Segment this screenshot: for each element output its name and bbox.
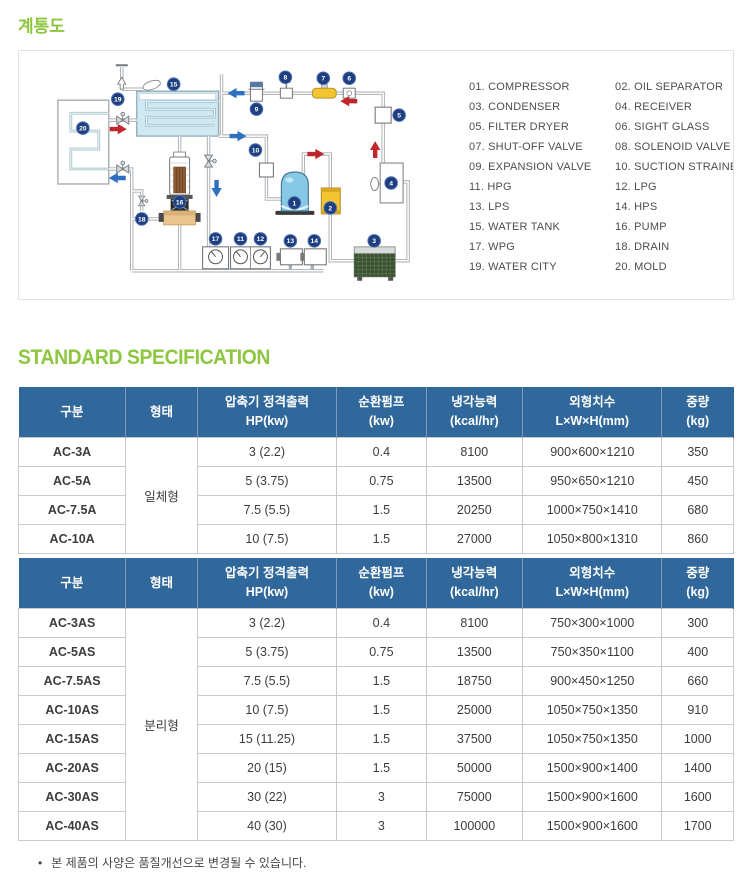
data-cell: 680 [662,496,734,525]
data-cell: 300 [662,609,734,638]
pressure-switches [276,249,326,265]
footnote-bullet: • [38,856,42,870]
diagram-markers: 1234567891011121314151617181920 [77,71,406,247]
col-header: 구분 [19,387,126,438]
data-cell: 37500 [426,725,523,754]
col-header: 순환펌프(kw) [337,387,426,438]
data-cell: 27000 [426,525,523,554]
model-cell: AC-5A [19,467,126,496]
data-cell: 1400 [662,754,734,783]
data-cell: 5 (3.75) [197,467,336,496]
data-cell: 8100 [426,438,523,467]
data-cell: 1000×750×1410 [523,496,662,525]
data-cell: 750×300×1000 [523,609,662,638]
col-header: 냉각능력(kcal/hr) [426,387,523,438]
inline-devices [248,82,391,123]
marker-number-19: 19 [114,97,122,104]
model-cell: AC-40AS [19,812,126,841]
data-cell: 3 (2.2) [197,609,336,638]
col-header: 압축기 정격출력HP(kw) [197,387,336,438]
spec-table-integrated: 구분형태압축기 정격출력HP(kw)순환펌프(kw)냉각능력(kcal/hr)외… [18,387,734,554]
data-cell: 1.5 [337,725,426,754]
marker-number-12: 12 [257,236,265,243]
wpg-gauge [203,247,229,269]
marker-number-7: 7 [321,76,325,83]
legend-item: 17. WPG [469,241,615,261]
legend-item: 13. LPS [469,201,615,221]
marker-number-11: 11 [237,236,244,243]
marker-number-17: 17 [212,236,220,243]
data-cell: 0.75 [337,467,426,496]
model-cell: AC-5AS [19,638,126,667]
data-cell: 0.4 [337,609,426,638]
data-cell: 1500×900×1600 [523,812,662,841]
col-header: 형태 [126,387,198,438]
marker-number-8: 8 [284,75,288,82]
marker-number-1: 1 [292,200,296,207]
footnote-text: 본 제품의 사양은 품질개선으로 변경될 수 있습니다. [51,854,306,871]
footnote: • 본 제품의 사양은 품질개선으로 변경될 수 있습니다. [38,854,734,871]
data-cell: 1500×900×1600 [523,783,662,812]
marker-number-10: 10 [252,147,260,154]
marker-number-9: 9 [255,107,259,114]
legend-item: 20. MOLD [615,261,734,281]
data-cell: 20 (15) [197,754,336,783]
page: 계통도 [0,12,752,885]
marker-number-6: 6 [347,76,351,83]
data-cell: 400 [662,638,734,667]
data-cell: 660 [662,667,734,696]
data-cell: 13500 [426,467,523,496]
legend-item: 12. LPG [615,181,734,201]
data-cell: 10 (7.5) [197,525,336,554]
col-header: 중량(kg) [662,387,734,438]
data-cell: 18750 [426,667,523,696]
legend-item: 06. SIGHT GLASS [615,121,734,141]
legend-item: 10. SUCTION STRAINER [615,161,734,181]
marker-number-13: 13 [287,238,295,245]
model-cell: AC-30AS [19,783,126,812]
data-cell: 1500×900×1400 [523,754,662,783]
legend-item: 01. COMPRESSOR [469,81,615,101]
model-cell: AC-10AS [19,696,126,725]
shut-off-valve [312,84,336,98]
data-cell: 5 (3.75) [197,638,336,667]
legend-item: 03. CONDENSER [469,101,615,121]
model-cell: AC-7.5AS [19,667,126,696]
float-valve [142,78,162,92]
legend-item: 11. HPG [469,181,615,201]
section-title-diagram: 계통도 [18,12,734,37]
data-cell: 1700 [662,812,734,841]
suction-strainer [259,163,273,177]
model-cell: AC-3A [19,438,126,467]
data-cell: 100000 [426,812,523,841]
spec-row: AC-3AS분리형3 (2.2)0.48100750×300×1000300 [19,609,734,638]
legend-item: 16. PUMP [615,221,734,241]
col-header: 냉각능력(kcal/hr) [426,558,523,609]
data-cell: 1050×750×1350 [523,725,662,754]
legend-item: 07. SHUT-OFF VALVE [469,141,615,161]
legend-item: 19. WATER CITY [469,261,615,281]
data-cell: 7.5 (5.5) [197,667,336,696]
hpg-lpg-gauges [231,247,271,269]
data-cell: 910 [662,696,734,725]
legend-item: 04. RECEIVER [615,101,734,121]
marker-number-20: 20 [79,126,87,133]
data-cell: 350 [662,438,734,467]
water-tank [137,91,219,136]
type-cell: 분리형 [126,609,198,841]
data-cell: 1.5 [337,754,426,783]
system-diagram: 1234567891011121314151617181920 [19,51,455,299]
data-cell: 0.4 [337,438,426,467]
data-cell: 1050×800×1310 [523,525,662,554]
data-cell: 50000 [426,754,523,783]
model-cell: AC-15AS [19,725,126,754]
marker-number-4: 4 [389,180,393,187]
data-cell: 900×600×1210 [523,438,662,467]
filter-dryer [375,107,391,123]
model-cell: AC-10A [19,525,126,554]
system-diagram-panel: 1234567891011121314151617181920 01. COMP… [18,50,734,300]
data-cell: 900×450×1250 [523,667,662,696]
col-header: 형태 [126,558,198,609]
legend-item: 15. WATER TANK [469,221,615,241]
data-cell: 10 (7.5) [197,696,336,725]
col-header: 외형치수L×W×H(mm) [523,558,662,609]
expansion-valve [248,82,264,101]
data-cell: 3 [337,812,426,841]
solenoid-valve [280,82,292,98]
legend-item: 18. DRAIN [615,241,734,261]
data-cell: 450 [662,467,734,496]
data-cell: 3 (2.2) [197,438,336,467]
col-header: 압축기 정격출력HP(kw) [197,558,336,609]
section-title-spec: STANDARD SPECIFICATION [18,346,677,370]
marker-number-5: 5 [397,113,401,120]
data-cell: 7.5 (5.5) [197,496,336,525]
legend-item: 14. HPS [615,201,734,221]
legend-item: 05. FILTER DRYER [469,121,615,141]
data-cell: 1.5 [337,696,426,725]
marker-number-14: 14 [311,238,319,245]
marker-number-16: 16 [176,199,184,206]
col-header: 순환펌프(kw) [337,558,426,609]
data-cell: 1050×750×1350 [523,696,662,725]
legend-list: 01. COMPRESSOR02. OIL SEPARATOR03. CONDE… [455,51,734,299]
data-cell: 15 (11.25) [197,725,336,754]
data-cell: 0.75 [337,638,426,667]
type-cell: 일체형 [126,438,198,554]
data-cell: 1.5 [337,496,426,525]
legend-item: 08. SOLENOID VALVE [615,141,734,161]
marker-number-15: 15 [170,82,178,89]
model-cell: AC-20AS [19,754,126,783]
marker-number-3: 3 [372,238,376,245]
data-cell: 1.5 [337,525,426,554]
gauges [203,247,271,269]
data-cell: 1600 [662,783,734,812]
col-header: 중량(kg) [662,558,734,609]
data-cell: 3 [337,783,426,812]
marker-number-2: 2 [328,205,332,212]
data-cell: 75000 [426,783,523,812]
data-cell: 30 (22) [197,783,336,812]
data-cell: 25000 [426,696,523,725]
data-cell: 1000 [662,725,734,754]
data-cell: 20250 [426,496,523,525]
legend-item: 02. OIL SEPARATOR [615,81,734,101]
model-cell: AC-7.5A [19,496,126,525]
data-cell: 1.5 [337,667,426,696]
data-cell: 13500 [426,638,523,667]
pump-unit [159,152,201,225]
col-header: 구분 [19,558,126,609]
data-cell: 950×650×1210 [523,467,662,496]
model-cell: AC-3AS [19,609,126,638]
data-cell: 40 (30) [197,812,336,841]
condenser-unit [354,247,395,281]
data-cell: 750×350×1100 [523,638,662,667]
data-cell: 8100 [426,609,523,638]
spec-row: AC-3A일체형3 (2.2)0.48100900×600×1210350 [19,438,734,467]
legend-item: 09. EXPANSION VALVE [469,161,615,181]
col-header: 외형치수L×W×H(mm) [523,387,662,438]
data-cell: 860 [662,525,734,554]
marker-number-18: 18 [138,216,146,223]
spec-table-separated: 구분형태압축기 정격출력HP(kw)순환펌프(kw)냉각능력(kcal/hr)외… [18,558,734,841]
